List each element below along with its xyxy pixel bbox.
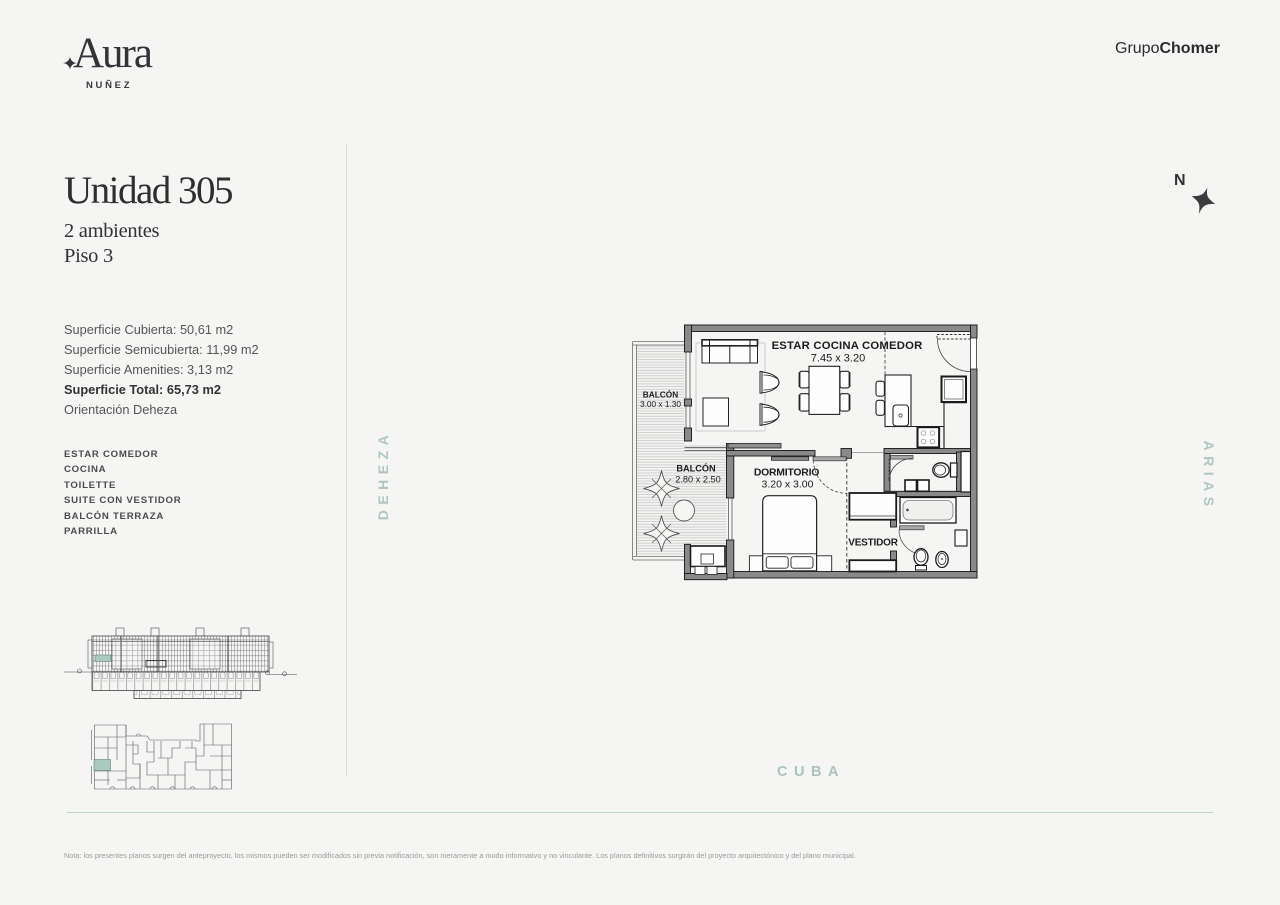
svg-text:7.45 x 3.20: 7.45 x 3.20: [811, 353, 865, 365]
svg-text:3.20 x 3.00: 3.20 x 3.00: [762, 479, 814, 491]
svg-text:2.80 x 2.50: 2.80 x 2.50: [675, 475, 720, 485]
svg-text:DORMITORIO: DORMITORIO: [754, 468, 819, 479]
svg-text:VESTIDOR: VESTIDOR: [848, 538, 898, 549]
svg-text:ESTAR COCINA COMEDOR: ESTAR COCINA COMEDOR: [772, 340, 923, 352]
svg-text:BALCÓN: BALCÓN: [643, 389, 679, 400]
svg-text:BALCÓN: BALCÓN: [676, 463, 716, 474]
svg-text:3.00 x 1.30: 3.00 x 1.30: [640, 399, 681, 409]
